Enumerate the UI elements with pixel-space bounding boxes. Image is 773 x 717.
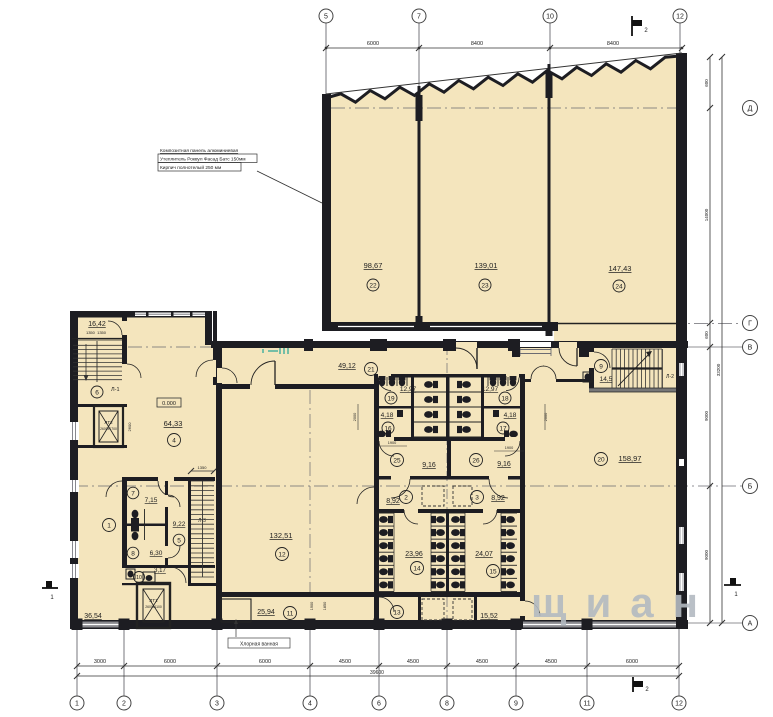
svg-text:64,33: 64,33 [164, 419, 183, 428]
svg-text:11: 11 [287, 610, 294, 617]
svg-text:6: 6 [95, 389, 99, 396]
svg-text:4500: 4500 [339, 659, 351, 665]
svg-text:8,92: 8,92 [491, 495, 505, 502]
svg-text:1: 1 [107, 522, 111, 529]
svg-text:600: 600 [704, 331, 709, 339]
svg-text:13: 13 [393, 609, 401, 616]
svg-text:18: 18 [501, 395, 509, 402]
svg-text:12: 12 [278, 551, 286, 558]
svg-text:24: 24 [615, 283, 623, 290]
svg-text:9: 9 [599, 363, 603, 370]
svg-text:6,30: 6,30 [150, 550, 163, 557]
svg-text:Д: Д [748, 106, 753, 113]
svg-text:6000: 6000 [367, 41, 379, 47]
svg-text:14000: 14000 [704, 208, 709, 221]
svg-text:12: 12 [675, 701, 683, 708]
svg-text:2600х1700: 2600х1700 [100, 427, 117, 431]
svg-text:25: 25 [393, 457, 401, 464]
svg-text:2600х1100: 2600х1100 [145, 605, 162, 609]
svg-text:4500: 4500 [476, 659, 488, 665]
svg-text:10: 10 [136, 575, 142, 581]
svg-text:0.000: 0.000 [162, 401, 176, 407]
svg-text:щиан: щиан [531, 579, 717, 626]
svg-text:В: В [748, 345, 753, 352]
svg-text:16,42: 16,42 [88, 321, 106, 328]
svg-text:9000: 9000 [704, 549, 709, 560]
svg-text:4: 4 [308, 701, 312, 708]
svg-text:4,18: 4,18 [504, 412, 517, 419]
svg-text:2000: 2000 [544, 413, 548, 421]
svg-text:600: 600 [704, 79, 709, 87]
svg-text:ЛТ1: ЛТ1 [149, 598, 158, 603]
svg-text:12,97: 12,97 [482, 386, 499, 393]
svg-text:1350: 1350 [198, 465, 208, 470]
svg-text:1900: 1900 [505, 446, 513, 450]
svg-text:6000: 6000 [259, 659, 271, 665]
svg-text:1: 1 [75, 701, 79, 708]
svg-text:98,67: 98,67 [364, 261, 383, 270]
svg-text:6: 6 [377, 701, 381, 708]
svg-text:8400: 8400 [471, 41, 483, 47]
svg-text:1900: 1900 [310, 602, 314, 610]
svg-text:6000: 6000 [626, 659, 638, 665]
svg-text:4,18: 4,18 [381, 412, 394, 419]
svg-text:39600: 39600 [370, 670, 384, 676]
svg-text:22: 22 [369, 282, 377, 289]
svg-text:7,15: 7,15 [145, 497, 158, 504]
svg-text:1350 1350: 1350 1350 [86, 330, 107, 335]
svg-text:Хлорная ванная: Хлорная ванная [240, 642, 278, 648]
svg-text:Б: Б [748, 484, 753, 491]
svg-text:139,01: 139,01 [475, 261, 498, 270]
svg-text:2: 2 [122, 701, 126, 708]
svg-text:9,16: 9,16 [422, 462, 436, 469]
svg-text:33200: 33200 [716, 363, 721, 376]
svg-text:23,96: 23,96 [405, 551, 423, 558]
svg-text:Композитная панель алюминиевая: Композитная панель алюминиевая [160, 148, 238, 154]
svg-text:1850: 1850 [323, 602, 327, 610]
svg-text:Кирпич полнотелый 250 мм: Кирпич полнотелый 250 мм [160, 164, 221, 171]
svg-text:Г: Г [748, 321, 752, 328]
svg-text:3000: 3000 [94, 659, 106, 665]
svg-text:15,52: 15,52 [480, 613, 498, 620]
svg-text:Л-1: Л-1 [111, 387, 120, 393]
svg-text:Л-3: Л-3 [198, 518, 206, 524]
svg-text:Утеплитель Роквул Фасад Батс 1: Утеплитель Роквул Фасад Батс 150мм [160, 157, 246, 163]
svg-text:15: 15 [489, 568, 497, 575]
svg-text:ЛТ2: ЛТ2 [104, 420, 113, 425]
svg-text:24,07: 24,07 [475, 551, 493, 558]
svg-text:19: 19 [387, 395, 395, 402]
svg-text:2600: 2600 [127, 422, 132, 432]
svg-text:132,51: 132,51 [270, 531, 293, 540]
svg-text:8,92: 8,92 [386, 498, 400, 505]
svg-text:9,22: 9,22 [173, 521, 186, 528]
svg-text:23: 23 [481, 282, 489, 289]
svg-text:147,43: 147,43 [609, 264, 632, 273]
svg-text:3: 3 [215, 701, 219, 708]
svg-text:25,94: 25,94 [257, 609, 275, 616]
svg-text:5: 5 [324, 14, 328, 21]
svg-text:5: 5 [177, 537, 181, 544]
svg-text:49,12: 49,12 [338, 363, 356, 370]
svg-text:8400: 8400 [607, 41, 619, 47]
svg-text:14: 14 [413, 565, 421, 572]
svg-text:2: 2 [404, 494, 408, 501]
svg-text:9,16: 9,16 [497, 461, 511, 468]
svg-text:6000: 6000 [164, 659, 176, 665]
svg-text:14,5: 14,5 [600, 376, 613, 383]
svg-text:8: 8 [445, 701, 449, 708]
svg-text:20: 20 [597, 456, 605, 463]
svg-text:11: 11 [583, 701, 590, 708]
svg-text:7: 7 [131, 490, 135, 497]
svg-text:Л-2: Л-2 [666, 374, 674, 380]
svg-text:26: 26 [472, 457, 480, 464]
svg-text:9000: 9000 [704, 410, 709, 421]
svg-text:4500: 4500 [407, 659, 419, 665]
svg-text:10: 10 [546, 14, 554, 21]
svg-text:4: 4 [172, 437, 176, 444]
svg-text:3,17: 3,17 [154, 568, 166, 574]
svg-text:А: А [748, 621, 753, 628]
svg-text:4500: 4500 [545, 659, 557, 665]
svg-text:1900: 1900 [388, 441, 396, 445]
svg-text:8: 8 [131, 550, 135, 557]
svg-text:158,97: 158,97 [619, 454, 642, 463]
svg-text:2000: 2000 [353, 413, 357, 421]
svg-text:7: 7 [417, 14, 421, 21]
svg-text:3: 3 [475, 494, 479, 501]
svg-text:21: 21 [367, 366, 375, 373]
svg-text:9: 9 [514, 701, 518, 708]
svg-text:36,54: 36,54 [84, 613, 102, 620]
svg-text:12: 12 [676, 14, 684, 21]
